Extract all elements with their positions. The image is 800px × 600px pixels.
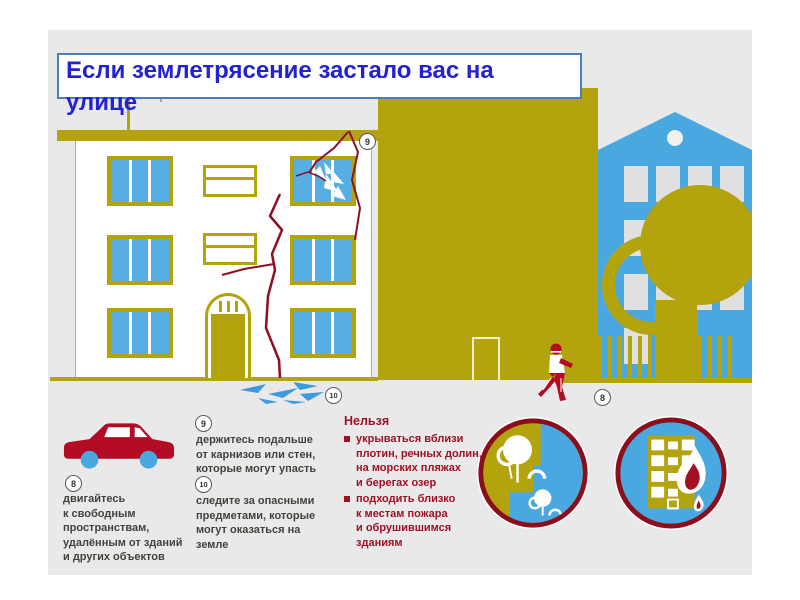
forbidden-line: и обрушившимся <box>356 521 455 536</box>
window <box>290 308 356 358</box>
instruction-line: которые могут упасть <box>196 462 316 477</box>
debris-icon <box>238 380 333 404</box>
running-person-icon <box>537 342 575 406</box>
forbidden-item-text: укрываться вблизи плотин, речных долин, … <box>356 432 482 490</box>
instruction-9-text: держитесь подальше от карнизов или стен,… <box>196 433 316 477</box>
building-roof <box>57 130 379 141</box>
window <box>203 165 257 197</box>
instruction-8-marker: 8 <box>65 475 82 492</box>
window <box>290 235 356 285</box>
broken-window-icon <box>290 156 356 206</box>
instruction-line: от карнизов или стен, <box>196 448 316 463</box>
tree-trunk <box>655 300 697 382</box>
instruction-line: могут оказаться на <box>196 523 315 538</box>
forbidden-line: и берегах озер <box>356 476 482 491</box>
instruction-9-marker: 9 <box>195 415 212 432</box>
gable-circle-icon <box>667 130 683 146</box>
instruction-line: держитесь подальше <box>196 433 316 448</box>
instruction-line: пространствам, <box>63 521 183 536</box>
forbidden-line: к местам пожара <box>356 507 455 522</box>
instruction-line: и других объектов <box>63 550 183 565</box>
door-arch-tick <box>219 301 222 312</box>
burning-building-icon <box>612 414 730 532</box>
instruction-line: удалённым от зданий <box>63 536 183 551</box>
instruction-line: к свободным <box>63 507 183 522</box>
door-arch-tick <box>235 301 238 312</box>
bullet-square-icon <box>344 436 350 442</box>
window <box>107 308 173 358</box>
forbidden-line: подходить близко <box>356 492 455 507</box>
forbidden-line: зданиям <box>356 536 455 551</box>
tree-icon <box>640 185 752 305</box>
instruction-10-marker: 10 <box>195 476 212 493</box>
window <box>203 233 257 265</box>
door-arch-tick <box>227 301 230 312</box>
car-icon <box>60 415 178 473</box>
instruction-8-text: двигайтесь к свободным пространствам, уд… <box>63 492 183 565</box>
bullet-square-icon <box>344 496 350 502</box>
instruction-line: земле <box>196 538 315 553</box>
forbidden-line: плотин, речных долин, <box>356 447 482 462</box>
door <box>205 293 251 378</box>
marker-8: 8 <box>594 389 611 406</box>
instruction-10-text: следите за опасными предметами, которые … <box>196 494 315 552</box>
forbidden-item: укрываться вблизи плотин, речных долин, … <box>344 432 482 490</box>
window <box>624 166 648 202</box>
door-leaf <box>211 314 245 378</box>
page-title: Если землетрясение застало вас на улице <box>66 55 566 119</box>
forbidden-item-text: подходить близко к местам пожара и обруш… <box>356 492 455 550</box>
window <box>107 156 173 206</box>
marker-9: 9 <box>359 133 376 150</box>
door <box>472 337 500 380</box>
forbidden-line: на морских пляжах <box>356 461 482 476</box>
forbidden-header: Нельзя <box>344 414 389 428</box>
instruction-line: двигайтесь <box>63 492 183 507</box>
instruction-line: следите за опасными <box>196 494 315 509</box>
window <box>107 235 173 285</box>
forbidden-line: укрываться вблизи <box>356 432 482 447</box>
forbidden-item: подходить близко к местам пожара и обруш… <box>344 492 455 550</box>
slide: 9 10 8 Если землетрясение застало вас на… <box>48 30 752 575</box>
park-safe-zone-icon <box>475 415 591 531</box>
instruction-line: предметами, которые <box>196 509 315 524</box>
marker-10: 10 <box>325 387 342 404</box>
